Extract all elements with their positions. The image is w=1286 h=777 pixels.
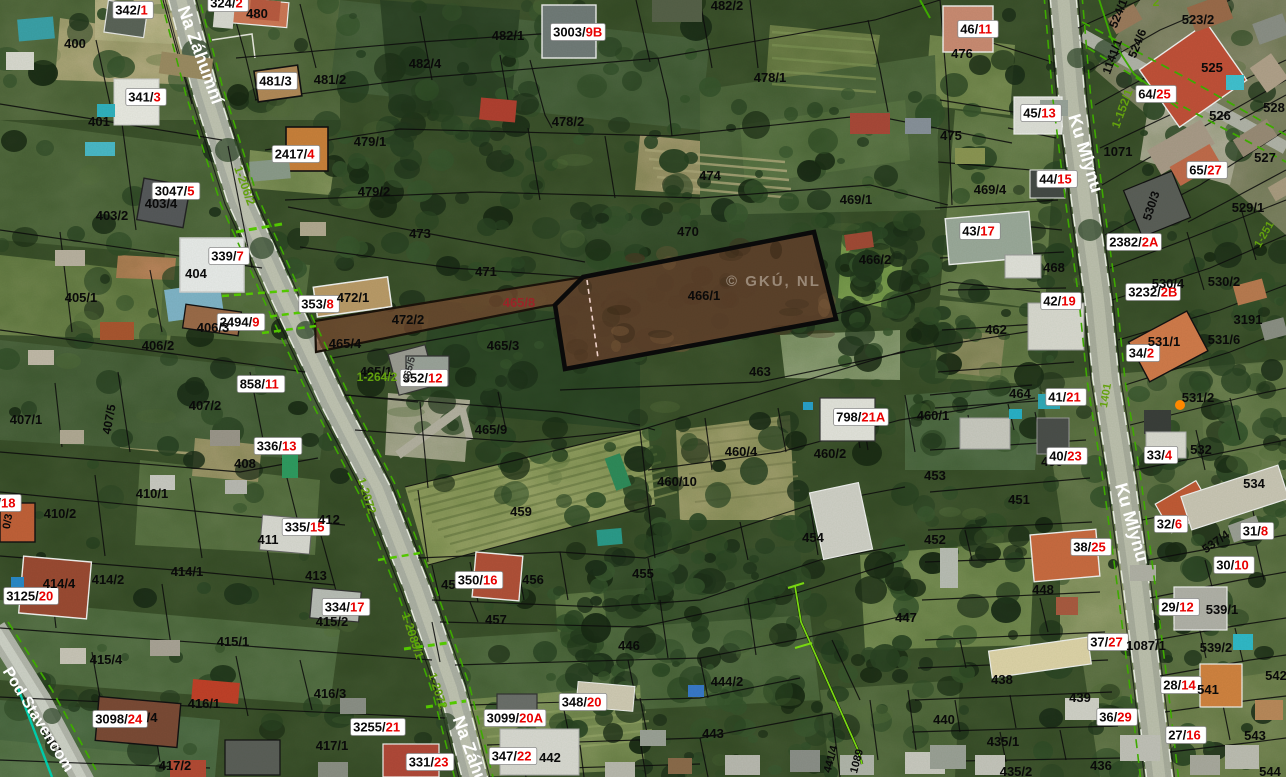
svg-text:406/3: 406/3	[197, 320, 230, 335]
svg-text:465/3: 465/3	[487, 338, 520, 353]
svg-text:414/2: 414/2	[92, 572, 125, 587]
svg-text:858/11: 858/11	[240, 377, 279, 392]
svg-text:460/4: 460/4	[725, 444, 758, 459]
svg-text:45/13: 45/13	[1023, 106, 1056, 121]
svg-text:479/1: 479/1	[354, 134, 387, 149]
svg-text:442: 442	[539, 750, 561, 765]
svg-text:1071: 1071	[1104, 144, 1133, 159]
svg-text:460/1: 460/1	[917, 408, 950, 423]
svg-text:525: 525	[1201, 60, 1223, 75]
svg-text:527: 527	[1254, 150, 1276, 165]
svg-text:468: 468	[1043, 260, 1065, 275]
svg-text:353/8: 353/8	[301, 297, 334, 312]
svg-text:27/16: 27/16	[1168, 728, 1201, 743]
svg-text:471: 471	[475, 264, 497, 279]
svg-text:334/17: 334/17	[325, 600, 365, 615]
svg-text:43/17: 43/17	[962, 224, 995, 239]
svg-text:482/1: 482/1	[492, 28, 525, 43]
svg-text:410/2: 410/2	[44, 506, 77, 521]
svg-text:444/2: 444/2	[711, 674, 744, 689]
svg-text:472/2: 472/2	[392, 312, 425, 327]
svg-text:406/2: 406/2	[142, 338, 175, 353]
svg-text:42/19: 42/19	[1043, 294, 1076, 309]
svg-text:455: 455	[632, 566, 654, 581]
svg-text:526: 526	[1209, 108, 1231, 123]
svg-text:453: 453	[924, 468, 946, 483]
svg-text:408: 408	[234, 456, 256, 471]
svg-text:414/1: 414/1	[171, 564, 204, 579]
svg-text:531/1: 531/1	[1148, 334, 1181, 349]
svg-text:456: 456	[522, 572, 544, 587]
svg-text:350/16: 350/16	[458, 573, 498, 588]
svg-text:417/2: 417/2	[159, 758, 192, 773]
svg-text:479/2: 479/2	[358, 184, 391, 199]
svg-text:3098/24: 3098/24	[95, 712, 143, 727]
svg-text:3255/21: 3255/21	[353, 720, 400, 735]
svg-text:465/8: 465/8	[503, 295, 536, 310]
svg-text:© GKÚ, NL: © GKÚ, NL	[726, 272, 821, 290]
svg-text:481/3: 481/3	[259, 74, 292, 89]
svg-text:465/9: 465/9	[475, 422, 508, 437]
svg-text:473: 473	[409, 226, 431, 241]
svg-text:41/21: 41/21	[1048, 390, 1081, 405]
svg-text:324/2: 324/2	[210, 0, 243, 11]
svg-text:36/29: 36/29	[1099, 710, 1132, 725]
svg-text:532: 532	[1190, 442, 1212, 457]
svg-text:530/2: 530/2	[1208, 274, 1241, 289]
svg-text:438: 438	[991, 672, 1013, 687]
svg-text:410/1: 410/1	[136, 486, 169, 501]
svg-text:466/1: 466/1	[688, 288, 721, 303]
svg-text:798/21A: 798/21A	[836, 410, 886, 425]
svg-text:542: 542	[1265, 668, 1286, 683]
svg-text:/4: /4	[147, 710, 159, 725]
svg-text:447: 447	[895, 610, 917, 625]
svg-text:413: 413	[305, 568, 327, 583]
svg-text:470: 470	[677, 224, 699, 239]
svg-text:31/8: 31/8	[1243, 524, 1268, 539]
svg-text:412: 412	[318, 512, 340, 527]
svg-text:46/11: 46/11	[960, 22, 992, 37]
svg-text:478/2: 478/2	[552, 114, 585, 129]
svg-text:436: 436	[1090, 758, 1112, 773]
svg-text:443: 443	[702, 726, 724, 741]
svg-text:469/4: 469/4	[974, 182, 1007, 197]
svg-text:417/1: 417/1	[316, 738, 349, 753]
svg-text:1087/1: 1087/1	[1126, 638, 1166, 653]
svg-text:415/1: 415/1	[217, 634, 250, 649]
svg-text:28/14: 28/14	[1163, 678, 1196, 693]
svg-text:32/6: 32/6	[1157, 517, 1182, 532]
svg-text:466/2: 466/2	[859, 252, 892, 267]
svg-text:416/1: 416/1	[188, 696, 221, 711]
svg-text:452: 452	[924, 532, 946, 547]
svg-text:464: 464	[1009, 386, 1031, 401]
svg-text:435/1: 435/1	[987, 734, 1020, 749]
svg-text:543: 543	[1244, 728, 1266, 743]
svg-text:2382/2A: 2382/2A	[1109, 235, 1159, 250]
svg-text:462: 462	[985, 322, 1007, 337]
svg-text:347/22: 347/22	[492, 749, 532, 764]
svg-text:528: 528	[1263, 100, 1285, 115]
svg-text:534: 534	[1243, 476, 1265, 491]
svg-text:401: 401	[88, 114, 110, 129]
svg-text:44/15: 44/15	[1039, 172, 1072, 187]
svg-text:435/2: 435/2	[1000, 764, 1033, 777]
svg-text:341/3: 341/3	[128, 90, 161, 105]
svg-text:400: 400	[64, 36, 86, 51]
svg-text:40/23: 40/23	[1049, 449, 1082, 464]
svg-text:544: 544	[1259, 764, 1281, 777]
svg-text:463: 463	[749, 364, 771, 379]
svg-text:37/27: 37/27	[1090, 635, 1123, 650]
svg-text:539/1: 539/1	[1206, 602, 1239, 617]
svg-text:531/6: 531/6	[1208, 332, 1241, 347]
svg-text:1-264/2: 1-264/2	[357, 370, 398, 384]
svg-text:541: 541	[1197, 682, 1219, 697]
svg-text:529/1: 529/1	[1232, 200, 1265, 215]
svg-text:336/13: 336/13	[257, 439, 297, 454]
svg-text:2: 2	[1153, 0, 1160, 9]
svg-text:481/2: 481/2	[314, 72, 347, 87]
svg-text:460/2: 460/2	[814, 446, 847, 461]
svg-text:2417/4: 2417/4	[275, 147, 316, 162]
svg-text:454: 454	[802, 530, 824, 545]
svg-text:448: 448	[1032, 582, 1054, 597]
svg-text:482/2: 482/2	[711, 0, 744, 13]
svg-text:38/25: 38/25	[1073, 540, 1106, 555]
svg-text:33/4: 33/4	[1147, 448, 1173, 463]
svg-text:439: 439	[1069, 690, 1091, 705]
svg-text:3099/20A: 3099/20A	[487, 711, 544, 726]
svg-text:414/4: 414/4	[43, 576, 76, 591]
svg-text:482/4: 482/4	[409, 56, 442, 71]
svg-text:342/1: 342/1	[115, 3, 148, 18]
svg-text:523/2: 523/2	[1182, 12, 1215, 27]
svg-text:29/12: 29/12	[1161, 600, 1194, 615]
svg-text:530/4: 530/4	[1152, 276, 1185, 291]
svg-text:339/7: 339/7	[211, 249, 244, 264]
svg-text:475: 475	[940, 128, 962, 143]
svg-text:/18: /18	[0, 496, 15, 511]
svg-text:451: 451	[1008, 492, 1030, 507]
svg-text:476: 476	[951, 46, 973, 61]
svg-text:457: 457	[485, 612, 507, 627]
svg-text:415/2: 415/2	[316, 614, 349, 629]
svg-text:331/23: 331/23	[409, 755, 449, 770]
svg-text:411: 411	[258, 532, 279, 547]
svg-text:407/1: 407/1	[10, 412, 43, 427]
svg-text:472/1: 472/1	[337, 290, 370, 305]
svg-text:407/2: 407/2	[189, 398, 222, 413]
svg-text:403/4: 403/4	[145, 196, 178, 211]
svg-text:440: 440	[933, 712, 955, 727]
svg-text:30/10: 30/10	[1216, 558, 1249, 573]
svg-text:65/27: 65/27	[1189, 163, 1222, 178]
svg-text:348/20: 348/20	[562, 695, 602, 710]
svg-text:446: 446	[618, 638, 640, 653]
svg-text:404: 404	[185, 266, 207, 281]
svg-text:469/1: 469/1	[840, 192, 873, 207]
svg-text:478/1: 478/1	[754, 70, 787, 85]
svg-text:403/2: 403/2	[96, 208, 129, 223]
svg-text:3003/9B: 3003/9B	[553, 25, 602, 40]
svg-text:474: 474	[699, 168, 721, 183]
svg-text:64/25: 64/25	[1138, 87, 1171, 102]
svg-text:416/3: 416/3	[314, 686, 347, 701]
svg-text:465/4: 465/4	[329, 336, 362, 351]
svg-text:415/4: 415/4	[90, 652, 123, 667]
svg-text:531/2: 531/2	[1182, 390, 1215, 405]
svg-text:460/10: 460/10	[657, 474, 697, 489]
svg-text:539/2: 539/2	[1200, 640, 1233, 655]
svg-text:480: 480	[246, 6, 268, 21]
svg-text:459: 459	[510, 504, 532, 519]
svg-text:405/1: 405/1	[65, 290, 98, 305]
svg-text:3191: 3191	[1234, 312, 1263, 327]
